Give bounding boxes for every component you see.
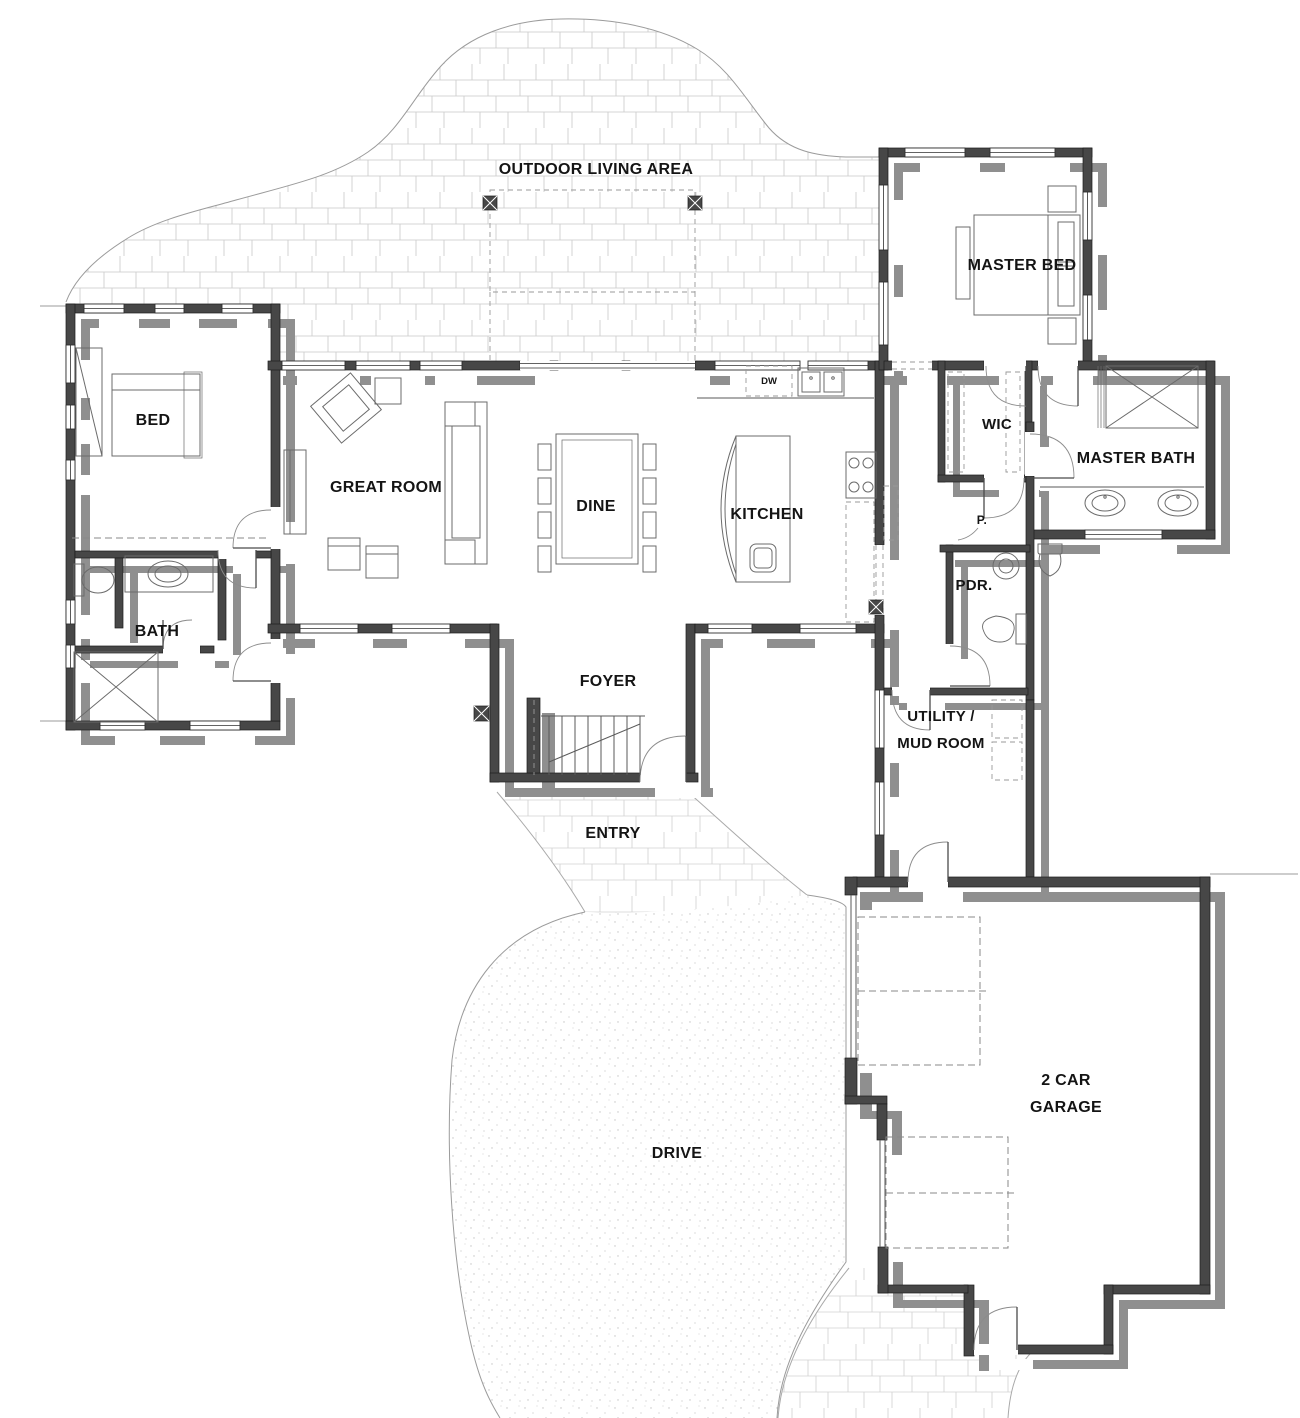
label-utility-line2: MUD ROOM <box>897 735 984 752</box>
label-foyer: FOYER <box>580 673 637 690</box>
pergola-post-icon <box>483 196 497 210</box>
master-bath-fixtures <box>1038 366 1204 576</box>
label-drive: DRIVE <box>652 1145 702 1162</box>
entry-walk <box>497 792 807 913</box>
label-master-bed: MASTER BED <box>968 257 1077 274</box>
label-bed: BED <box>136 412 171 429</box>
label-kitchen: KITCHEN <box>730 506 803 523</box>
column-post-icon <box>474 706 489 721</box>
label-master-bath: MASTER BATH <box>1077 450 1196 467</box>
label-great-room: GREAT ROOM <box>330 479 442 496</box>
label-dishwasher: DW <box>761 376 777 387</box>
floor-plan-drawing: OUTDOOR LIVING AREA MASTER BED BED GREAT… <box>0 0 1300 1418</box>
pergola-post-icon <box>688 196 702 210</box>
washer-dryer-icons <box>992 700 1022 780</box>
label-garage-line2: GARAGE <box>1030 1099 1102 1116</box>
label-pantry: P. <box>977 513 987 527</box>
shower-icon <box>1098 366 1198 428</box>
label-entry: ENTRY <box>585 825 640 842</box>
label-garage-line1: 2 CAR <box>1041 1072 1091 1089</box>
label-pdr: PDR. <box>955 577 992 594</box>
bed-furniture <box>76 348 202 458</box>
label-outdoor-living-area: OUTDOOR LIVING AREA <box>499 161 694 178</box>
label-utility-line1: UTILITY / <box>907 708 975 725</box>
label-bath: BATH <box>135 623 179 640</box>
car-bays <box>858 917 1016 1248</box>
great-room-furniture <box>284 373 487 578</box>
floor-plan-page: OUTDOOR LIVING AREA MASTER BED BED GREAT… <box>0 0 1300 1418</box>
double-vanity-icon <box>1085 490 1198 516</box>
column-post-icon <box>869 600 883 614</box>
pantry-arrow <box>958 528 978 540</box>
label-dine: DINE <box>576 498 615 515</box>
drive-surface <box>449 895 846 1418</box>
label-wic: WIC <box>982 416 1012 433</box>
kitchen-fixtures <box>697 366 876 622</box>
range-icon <box>846 452 876 498</box>
